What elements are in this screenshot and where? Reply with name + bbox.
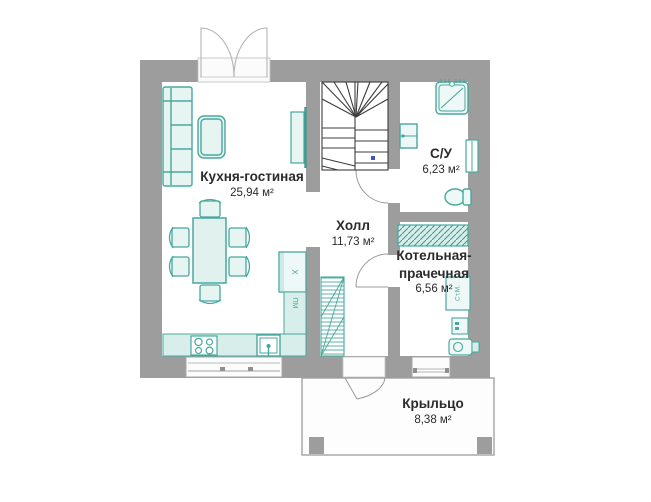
kitchen-sink xyxy=(257,335,280,356)
sofa xyxy=(163,87,192,186)
dishwasher-label: ПМ xyxy=(291,298,298,309)
bathroom-window xyxy=(466,140,478,172)
room-area: 8,38 м² xyxy=(402,414,463,426)
room-area: 6,23 м² xyxy=(422,164,459,176)
tv xyxy=(291,107,306,168)
fridge-label: Х xyxy=(290,269,299,275)
floor-plan: Х ПМ xyxy=(0,0,651,502)
room-label-boiler-laundry: Котельная-прачечная 6,56 м² xyxy=(386,247,482,295)
room-name: Котельная-прачечная xyxy=(386,247,482,282)
dining-table xyxy=(193,218,226,283)
room-name: Кухня-гостиная xyxy=(200,168,303,186)
hall-wardrobe xyxy=(321,277,344,356)
shower xyxy=(436,79,468,114)
electrical-panel xyxy=(452,318,468,334)
room-area: 6,56 м² xyxy=(386,283,482,295)
room-name: С/У xyxy=(422,145,459,163)
room-name: Холл xyxy=(332,217,375,235)
toilet xyxy=(445,189,471,205)
room-label-bathroom: С/У 6,23 м² xyxy=(422,145,459,176)
floor-plan-drawing: Х ПМ xyxy=(0,0,651,502)
room-label-kitchen-living: Кухня-гостиная 25,94 м² xyxy=(200,168,303,199)
porch-window xyxy=(412,357,450,377)
kitchen-counter xyxy=(163,334,306,356)
room-label-hall: Холл 11,73 м² xyxy=(332,217,375,248)
dishwasher: ПМ xyxy=(284,292,306,336)
room-label-porch: Крыльцо 8,38 м² xyxy=(402,395,463,426)
coffee-table xyxy=(198,116,225,158)
fridge: Х xyxy=(279,252,306,292)
bathroom-door xyxy=(356,170,388,203)
laundry-shelf xyxy=(398,225,468,246)
kitchen-window xyxy=(186,357,282,377)
room-name: Крыльцо xyxy=(402,395,463,413)
room-area: 25,94 м² xyxy=(200,187,303,199)
porch xyxy=(302,378,494,455)
stove xyxy=(191,336,217,355)
staircase xyxy=(322,82,388,170)
bathroom-sink xyxy=(400,124,417,148)
french-door xyxy=(198,28,270,82)
room-area: 11,73 м² xyxy=(332,236,375,248)
laundry-door xyxy=(356,254,388,287)
